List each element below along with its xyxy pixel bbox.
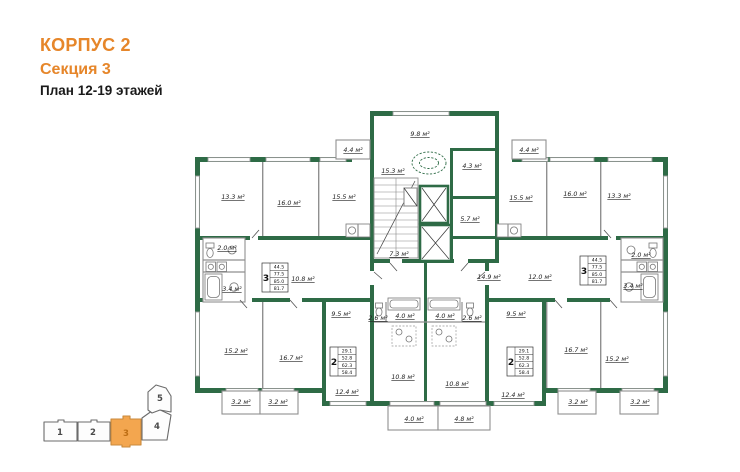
stamp-room-count: 3: [581, 267, 587, 277]
floor-plan: 13.3 м² 16.0 м² 15.5 м² 4.4 м² 15.3 м² 9…: [0, 0, 740, 472]
stamp-room-count: 2: [508, 358, 514, 368]
apartment-stamp-2room-left: 2 29.1 52.8 62.3 58.4: [330, 347, 356, 376]
stamp-value: 62.3: [519, 363, 529, 369]
room-area-label: 9.5 м²: [331, 311, 351, 318]
stamp-value: 62.3: [342, 363, 352, 369]
room-area-label: 10.8 м²: [391, 374, 415, 381]
locator-number-active: 3: [123, 429, 129, 439]
stamp-value: 52.8: [342, 356, 352, 362]
room-area-label: 15.3 м²: [381, 168, 405, 175]
room-area-label: 12.4 м²: [335, 389, 359, 396]
stamp-value: 52.8: [519, 356, 529, 362]
stamp-room-count: 2: [331, 358, 337, 368]
room-area-label: 15.2 м²: [605, 356, 629, 363]
room-area-label: 3.2 м²: [568, 399, 588, 406]
room-area-label: 4.0 м²: [404, 416, 424, 423]
room-area-label: 13.3 м²: [221, 194, 245, 201]
room-area-label: 16.7 м²: [564, 347, 588, 354]
room-area-label: 3.2 м²: [630, 399, 650, 406]
room-area-label: 12.0 м²: [528, 274, 552, 281]
room-area-label: 10.8 м²: [445, 381, 469, 388]
room-area-label: 13.3 м²: [607, 193, 631, 200]
room-area-label: 14.9 м²: [477, 274, 501, 281]
stamp-room-count: 3: [263, 274, 269, 284]
room-area-label: 2.0 м²: [631, 252, 651, 259]
stamp-value: 81.7: [274, 286, 284, 292]
stamp-value: 44.5: [274, 264, 284, 270]
room-area-label: 2.6 м²: [462, 315, 482, 322]
room-area-label: 10.8 м²: [291, 276, 315, 283]
vent-symbol: [412, 152, 446, 174]
locator-number: 1: [57, 428, 63, 438]
room-area-label: 16.0 м²: [563, 191, 587, 198]
apartment-stamp-2room-right: 2 29.1 52.8 62.3 58.4: [507, 347, 533, 376]
stamp-value: 85.0: [592, 272, 602, 278]
room-area-label: 7.3 м²: [389, 251, 409, 258]
stamp-value: 81.7: [592, 279, 602, 285]
stamp-value: 29.1: [519, 348, 529, 354]
room-area-label: 2.6 м²: [368, 315, 388, 322]
stamp-value: 58.4: [519, 370, 529, 376]
section-locator: 1 2 3 4 5: [44, 385, 171, 447]
room-area-label: 4.4 м²: [343, 147, 363, 154]
room-area-label: 4.0 м²: [435, 313, 455, 320]
room-area-label: 9.8 м²: [410, 131, 430, 138]
room-area-label: 3.2 м²: [231, 399, 251, 406]
apartment-stamp-3room-left: 3 44.5 77.5 85.0 81.7: [262, 263, 288, 292]
room-area-label: 3.2 м²: [268, 399, 288, 406]
stamp-value: 77.5: [274, 272, 284, 278]
stamp-value: 44.5: [592, 257, 602, 263]
room-area-label: 15.2 м²: [224, 348, 248, 355]
room-area-label: 2.0 м²: [217, 245, 237, 252]
room-area-label: 15.5 м²: [509, 195, 533, 202]
room-area-label: 9.5 м²: [506, 311, 526, 318]
stamp-value: 77.5: [592, 265, 602, 271]
locator-number: 5: [157, 394, 163, 404]
room-area-label: 3.4 м²: [222, 286, 242, 293]
room-area-label: 5.7 м²: [460, 216, 480, 223]
room-area-label: 3.4 м²: [623, 283, 643, 290]
room-area-label: 4.3 м²: [462, 163, 482, 170]
room-area-label: 4.8 м²: [454, 416, 474, 423]
room-area-label: 16.7 м²: [279, 355, 303, 362]
room-area-label: 16.0 м²: [277, 200, 301, 207]
stamp-value: 29.1: [342, 348, 352, 354]
locator-number: 2: [90, 428, 96, 438]
stamp-value: 58.4: [342, 370, 352, 376]
stamp-value: 85.0: [274, 279, 284, 285]
apartment-stamp-3room-right: 3 44.5 77.5 85.0 81.7: [580, 256, 606, 285]
locator-number: 4: [154, 422, 160, 432]
room-area-label: 4.4 м²: [519, 147, 539, 154]
room-area-label: 15.5 м²: [332, 194, 356, 201]
room-area-label: 4.0 м²: [395, 313, 415, 320]
room-area-label: 12.4 м²: [501, 392, 525, 399]
